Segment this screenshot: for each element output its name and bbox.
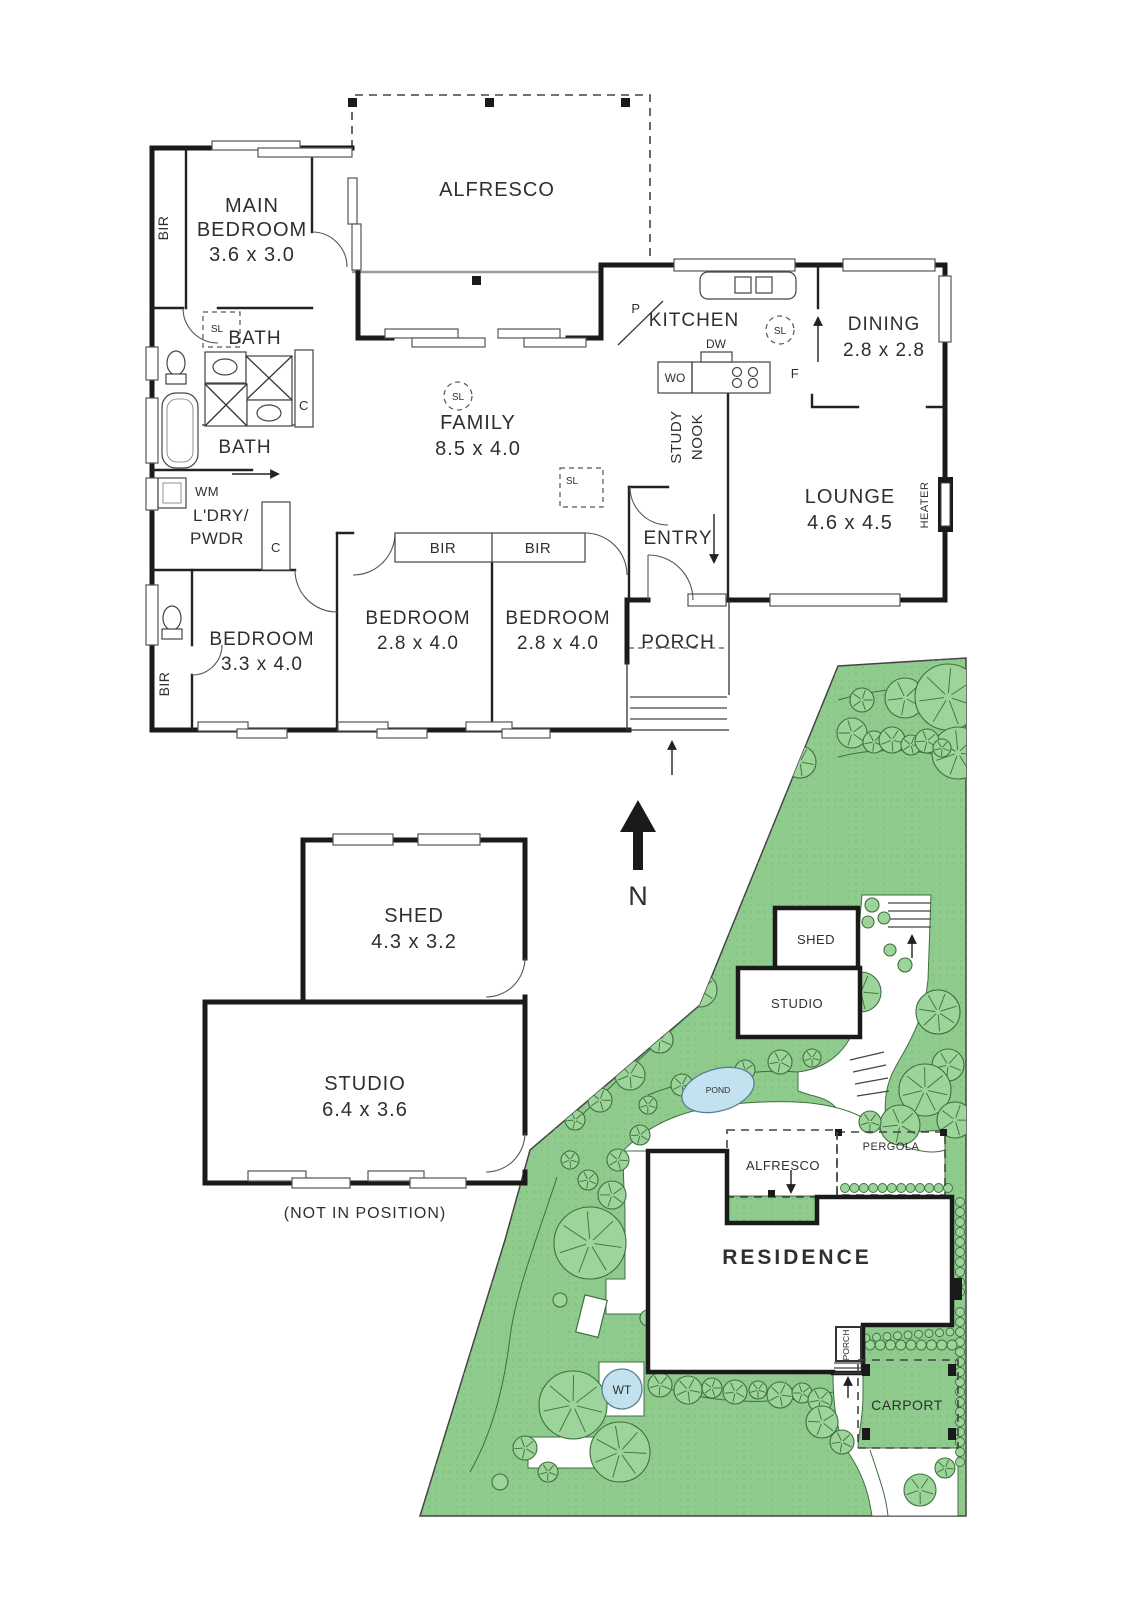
study-nook-label-2: NOOK: [689, 414, 706, 460]
site-plan: POND SHED STUDIO PERGOLA RESIDENCE ALFRE…: [420, 658, 984, 1516]
bir-hall-label-2: BIR: [525, 540, 552, 557]
sl-family-label: SL: [452, 392, 465, 403]
bath1-label: BATH: [228, 328, 281, 349]
lounge-label: LOUNGE: [805, 486, 895, 508]
site-porch-label: PORCH: [841, 1330, 851, 1361]
c-bath-label: C: [299, 398, 309, 413]
entry-label: ENTRY: [643, 528, 712, 549]
shed-label: SHED: [384, 905, 444, 927]
site-studio-label: STUDIO: [771, 996, 823, 1011]
studio-dims: 6.4 x 3.6: [322, 1099, 408, 1121]
bedroom2-dims: 2.8 x 4.0: [377, 633, 459, 654]
floorplan-drawing: POND SHED STUDIO PERGOLA RESIDENCE ALFRE…: [0, 0, 1131, 1600]
bir-bottom-label: BIR: [156, 672, 172, 697]
carport-label: CARPORT: [871, 1397, 943, 1413]
bedroom2-label: BEDROOM: [365, 608, 470, 629]
dining-label: DINING: [848, 314, 921, 335]
dining-dims: 2.8 x 2.8: [843, 340, 925, 361]
residence-label: RESIDENCE: [722, 1246, 872, 1269]
bedroom1-dims: 3.3 x 4.0: [221, 654, 303, 675]
kitchen-label: KITCHEN: [649, 310, 739, 331]
site-bottom-left-pad: [528, 1437, 600, 1468]
fridge-label: F: [791, 366, 799, 381]
wo-label: WO: [665, 371, 686, 385]
not-in-position-note: (NOT IN POSITION): [284, 1205, 446, 1222]
ldry-label-1: L'DRY/: [193, 506, 249, 525]
main-bedroom-label-1: MAIN: [225, 195, 279, 217]
family-label: FAMILY: [440, 412, 516, 434]
sl-kitchen-label: SL: [774, 326, 787, 337]
site-alfresco-label: ALFRESCO: [746, 1158, 820, 1173]
outbuilding-floor-plan: SHED 4.3 x 3.2 STUDIO 6.4 x 3.6 (NOT IN …: [205, 834, 525, 1222]
shed-dims: 4.3 x 3.2: [371, 931, 457, 953]
bedroom3-dims: 2.8 x 4.0: [517, 633, 599, 654]
porch-label: PORCH: [641, 632, 715, 653]
study-nook-label-1: STUDY: [668, 410, 685, 463]
north-arrow: N: [620, 800, 656, 911]
dw-label: DW: [706, 337, 727, 351]
pond-label: POND: [706, 1085, 731, 1095]
wm-label: WM: [195, 484, 219, 499]
pergola-label: PERGOLA: [863, 1141, 920, 1153]
bath2-label: BATH: [218, 437, 271, 458]
water-tank-label: WT: [613, 1383, 632, 1397]
bir-hall-label-1: BIR: [430, 540, 457, 557]
bedroom3-label: BEDROOM: [505, 608, 610, 629]
bir-top-label: BIR: [155, 216, 171, 241]
main-bedroom-label-2: BEDROOM: [197, 219, 307, 241]
bedroom1-label: BEDROOM: [209, 629, 314, 650]
heater-label: HEATER: [919, 482, 931, 529]
floorplan-page: POND SHED STUDIO PERGOLA RESIDENCE ALFRE…: [0, 0, 1131, 1600]
pantry-label: P: [631, 301, 640, 316]
studio-label: STUDIO: [324, 1073, 406, 1095]
ldry-label-2: PWDR: [190, 529, 244, 548]
alfresco-label: ALFRESCO: [439, 179, 555, 201]
north-label: N: [628, 881, 648, 911]
sl-family-sq-label: SL: [566, 476, 579, 487]
sl-bath-label: SL: [211, 324, 224, 335]
residence-door-notch: [950, 1278, 962, 1300]
site-shed-label: SHED: [797, 932, 835, 947]
family-dims: 8.5 x 4.0: [435, 438, 521, 460]
main-bedroom-dims: 3.6 x 3.0: [209, 244, 295, 266]
c-laundry-label: C: [271, 540, 281, 555]
lounge-dims: 4.6 x 4.5: [807, 512, 893, 534]
house-floor-plan: BIR MAIN BEDROOM 3.6 x 3.0 ALFRESCO SL B…: [146, 95, 953, 775]
